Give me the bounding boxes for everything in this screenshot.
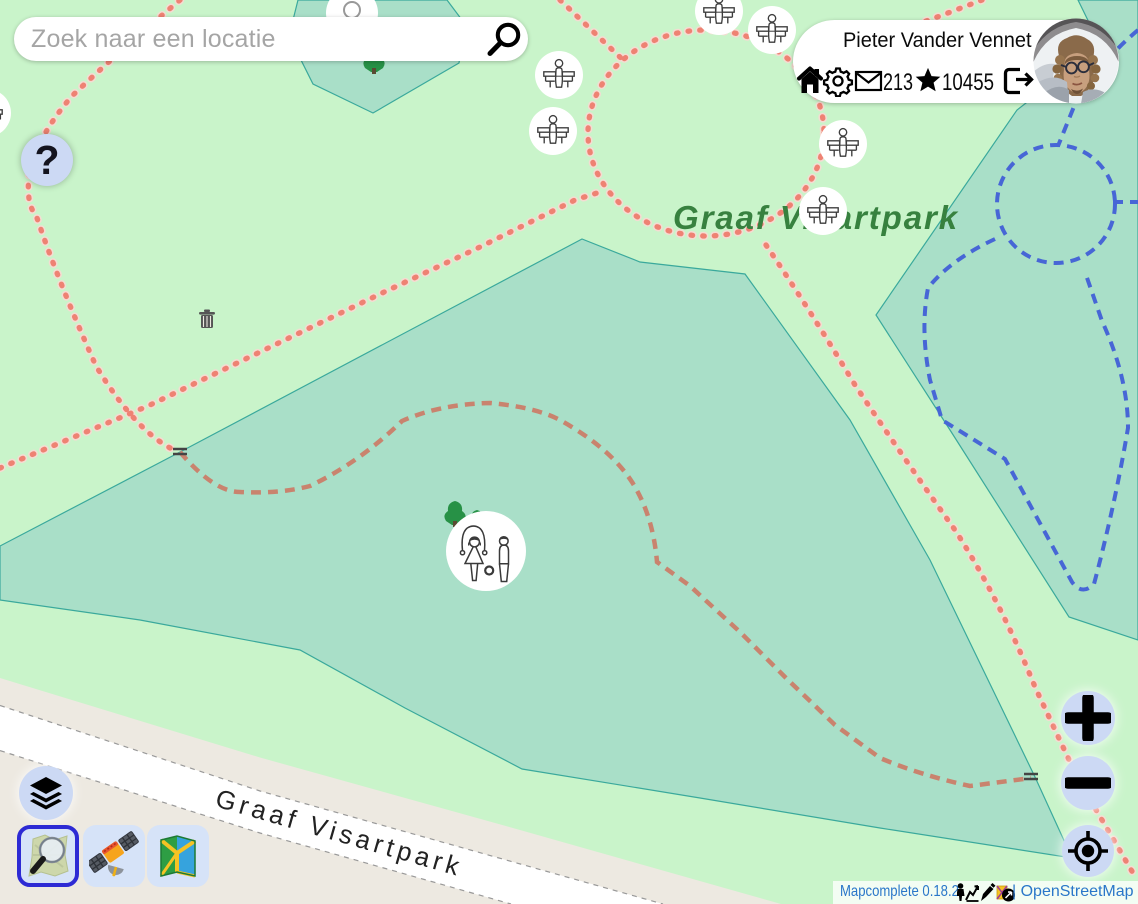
svg-text:10455: 10455 [942,69,994,96]
svg-text:213: 213 [883,69,913,96]
